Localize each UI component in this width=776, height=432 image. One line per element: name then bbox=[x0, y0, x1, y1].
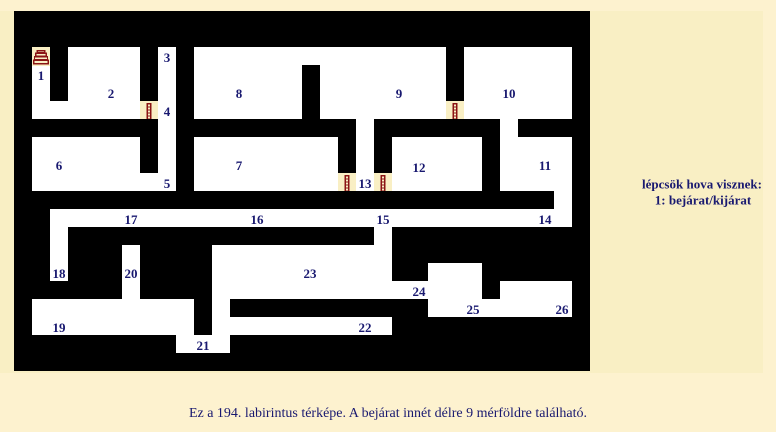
svg-text:11: 11 bbox=[539, 158, 551, 173]
svg-text:24: 24 bbox=[413, 284, 427, 299]
svg-text:9: 9 bbox=[396, 86, 403, 101]
svg-text:20: 20 bbox=[125, 266, 138, 281]
svg-text:15: 15 bbox=[377, 212, 391, 227]
svg-text:3: 3 bbox=[164, 50, 171, 65]
svg-text:1: bejárat/kijárat: 1: bejárat/kijárat bbox=[655, 193, 752, 208]
svg-text:2: 2 bbox=[108, 86, 115, 101]
svg-text:14: 14 bbox=[539, 212, 553, 227]
svg-text:7: 7 bbox=[236, 158, 243, 173]
svg-text:21: 21 bbox=[197, 338, 210, 353]
svg-text:25: 25 bbox=[467, 302, 481, 317]
svg-text:10: 10 bbox=[503, 86, 516, 101]
svg-text:12: 12 bbox=[413, 160, 426, 175]
svg-text:lépcsök hova visznek:: lépcsök hova visznek: bbox=[642, 177, 762, 192]
svg-text:5: 5 bbox=[164, 176, 171, 191]
svg-text:22: 22 bbox=[359, 320, 372, 335]
svg-text:23: 23 bbox=[304, 266, 318, 281]
svg-text:Ez a 194. labirintus térképe.: Ez a 194. labirintus térképe. A bejárat … bbox=[189, 406, 587, 421]
svg-text:17: 17 bbox=[125, 212, 139, 227]
svg-text:13: 13 bbox=[359, 176, 373, 191]
svg-text:19: 19 bbox=[53, 320, 67, 335]
svg-text:16: 16 bbox=[251, 212, 265, 227]
svg-text:18: 18 bbox=[53, 266, 67, 281]
svg-text:26: 26 bbox=[556, 302, 570, 317]
svg-text:8: 8 bbox=[236, 86, 243, 101]
svg-text:6: 6 bbox=[56, 158, 63, 173]
svg-text:1: 1 bbox=[38, 68, 45, 83]
svg-text:4: 4 bbox=[164, 104, 171, 119]
